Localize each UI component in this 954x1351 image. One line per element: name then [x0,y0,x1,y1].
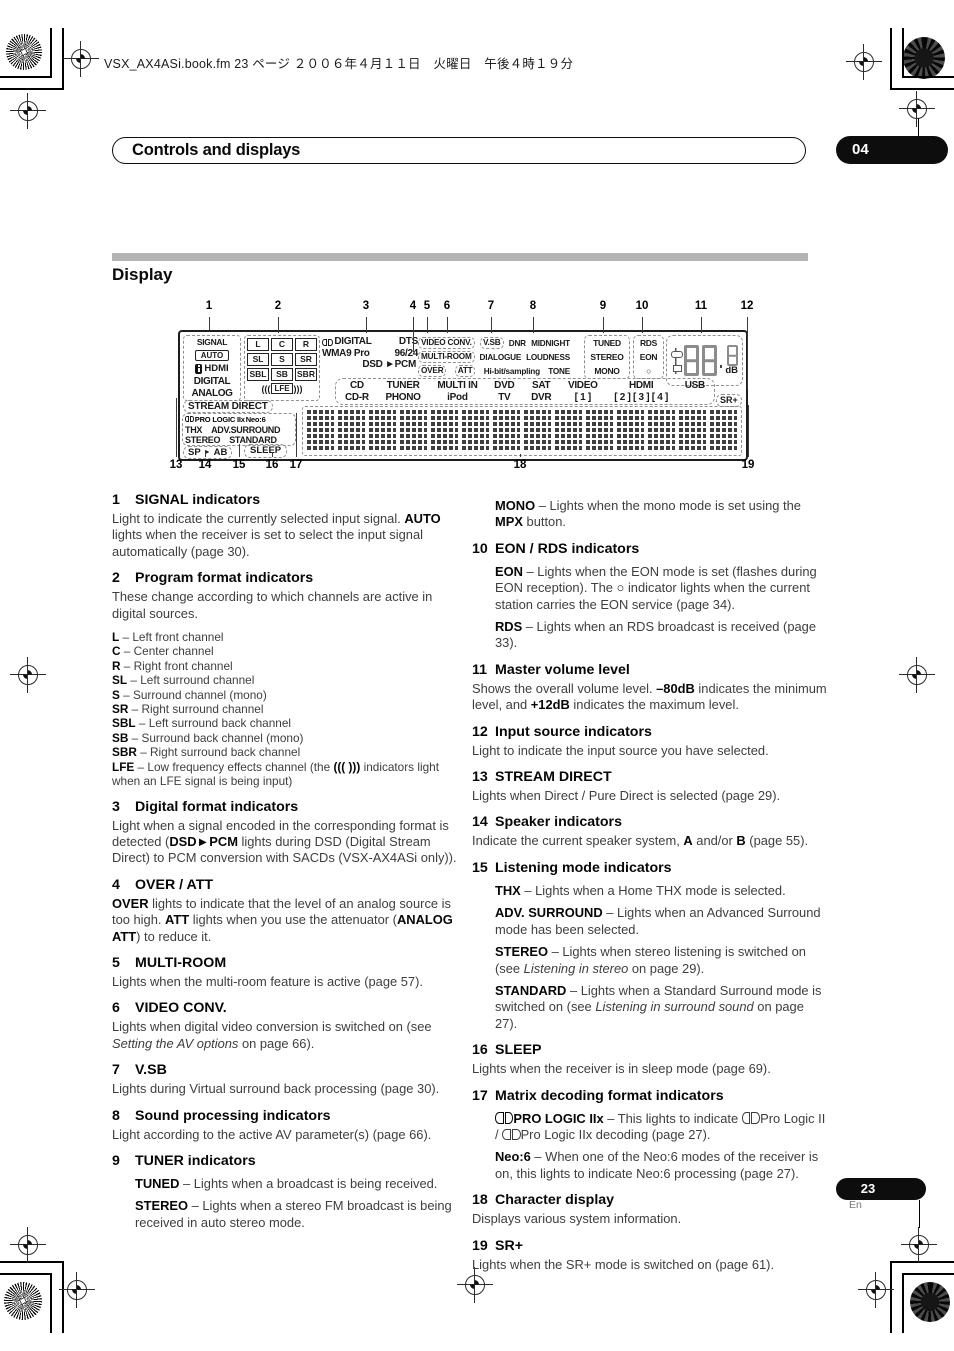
input-source: SATDVR [531,380,551,403]
registration-crosshair-icon [846,44,882,80]
section-heading: 17Matrix decoding format indicators [472,1088,828,1105]
body-paragraph: Lights when the multi-room feature is ac… [112,974,466,990]
callout-number: 14 [199,459,212,471]
sound-proc-indicator: Hi-bit/sampling [484,367,540,376]
body-paragraph: EON – Lights when the EON mode is set (f… [495,564,828,613]
callout-line [205,450,206,457]
body-paragraph: Shows the overall volume level. –80dB in… [472,681,828,714]
callout-line [447,317,448,333]
dot-matrix-cell [648,410,675,452]
dts-indicator: DTS [399,337,418,348]
dot-matrix-cell [617,410,644,452]
dot-matrix-cell [710,410,737,452]
language-label: En [849,1199,862,1211]
body-paragraph: Lights when the receiver is in sleep mod… [472,1061,828,1077]
manual-section: 15Listening mode indicatorsTHX – Lights … [472,860,828,1032]
listening-mode-row: THXADV.SURROUND [185,425,293,435]
section-title: Display [112,265,172,285]
channel-grid: LCRSLSSRSBLSBSBR [247,338,317,381]
manual-section: 13STREAM DIRECTLights when Direct / Pure… [472,769,828,804]
definition-item: R – Right front channel [112,659,466,673]
header-text: VSX_AX4ASi.book.fm 23 ページ ２００６年４月１１日 火曜日… [104,53,573,72]
seven-segment-digit [702,345,717,376]
callout-line [413,317,414,352]
crop-mark [0,1273,50,1275]
callout-line [296,413,297,457]
dolby-icon [502,1129,520,1140]
section-heading: 2Program format indicators [112,570,466,587]
dot-matrix-cell [462,410,489,452]
callout-number: 15 [233,459,246,471]
digital-indicator: DIGITAL [194,377,230,387]
input-source: CDCD-R [345,380,369,403]
body-paragraph: TUNED – Lights when a broadcast is being… [135,1176,466,1192]
manual-section: 10EON / RDS indicatorsEON – Lights when … [472,541,828,652]
section-rule [112,253,808,261]
manual-section: 2Program format indicatorsThese change a… [112,570,466,788]
channel-indicator: C [271,338,293,351]
sound-processing-block: VIDEO CONV.V.SBDNRMIDNIGHTMULTI-ROOMDIAL… [418,336,570,378]
section-heading: 10EON / RDS indicators [472,541,828,558]
registration-dark-circle-icon [903,37,945,79]
section-heading: 19SR+ [472,1238,828,1255]
definition-item: SL – Left surround channel [112,673,466,687]
sound-proc-indicator: V.SB [480,337,504,349]
callout-number: 16 [266,459,279,471]
callout-number: 7 [488,300,494,312]
section-heading: 12Input source indicators [472,724,828,741]
manual-section: 6VIDEO CONV.Lights when digital video co… [112,1000,466,1052]
sound-proc-indicator: LOUDNESS [526,353,570,362]
decimal-dot [720,365,723,368]
body-paragraph: Light when a signal encoded in the corre… [112,818,466,867]
dot-matrix-cell [679,410,706,452]
dot-matrix-cell [493,410,520,452]
registration-crosshair-icon [899,91,935,127]
section-heading: 15Listening mode indicators [472,860,828,877]
9624-indicator: 96/24 [394,349,418,360]
volume-fader-icon [671,348,681,374]
section-heading: 9TUNER indicators [112,1153,466,1170]
body-paragraph: PRO LOGIC IIx – This lights to indicate … [495,1111,828,1144]
body-paragraph: Lights when Direct / Pure Direct is sele… [472,788,828,804]
callout-number: 8 [530,300,536,312]
input-source: DVDTV [494,380,514,403]
callout-number: 6 [444,300,450,312]
dot-matrix-cell [400,410,427,452]
manual-section: 19SR+Lights when the SR+ mode is switche… [472,1238,828,1273]
auto-indicator: AUTO [195,350,230,361]
section-heading: 8Sound processing indicators [112,1108,466,1125]
manual-section: 7V.SBLights during Virtual surround back… [112,1062,466,1097]
page-number-badge: 23 [836,1178,926,1200]
callout-line [603,317,604,333]
callout-number: 2 [275,300,281,312]
channel-indicator: SBR [295,368,317,381]
connector-line [919,1200,920,1228]
definition-item: LFE – Low frequency effects channel (the… [112,760,466,789]
tuner-indicator: TUNED [593,339,621,348]
wma9-indicator: WMA9 Pro [322,349,370,360]
manual-section: 14Speaker indicatorsIndicate the current… [472,814,828,849]
registration-crosshair-icon [10,93,46,129]
dolby-icon [495,1112,513,1123]
sound-proc-indicator: MULTI-ROOM [418,351,475,363]
sound-proc-indicator: TONE [548,367,570,376]
callout-line [427,317,428,333]
definition-item: SBR – Right surround back channel [112,745,466,759]
registration-crosshair-icon [59,1272,95,1308]
channel-indicator: SR [295,353,317,366]
manual-section: 16SLEEPLights when the receiver is in sl… [472,1042,828,1077]
right-column: MONO – Lights when the mono mode is set … [472,492,828,1273]
db-unit-label: dB [725,366,738,376]
callout-number: 19 [742,459,755,471]
callout-line [278,317,279,333]
callout-number: 18 [514,459,527,471]
rds-indicator: ○ [646,367,651,376]
manual-section: 1SIGNAL indicatorsLight to indicate the … [112,492,466,560]
crop-mark [890,28,892,90]
crop-mark [890,88,954,90]
section-heading: 14Speaker indicators [472,814,828,831]
dot-matrix-cell [307,410,334,452]
callout-number: 4 [410,300,416,312]
callout-number: 3 [363,300,369,312]
lfe-indicator: ((( LFE ))) [247,383,317,394]
dot-matrix-cell [555,410,582,452]
section-heading: 13STREAM DIRECT [472,769,828,786]
rds-indicator: RDS [640,339,657,348]
section-heading: 3Digital format indicators [112,799,466,816]
definition-item: SB – Surround back channel (mono) [112,731,466,745]
sound-proc-indicator: ATT [455,365,476,377]
section-heading: 16SLEEP [472,1042,828,1059]
dolby-digital-indicator: DIGITAL [322,337,372,348]
callout-line [272,452,273,457]
manual-section: 12Input source indicatorsLight to indica… [472,724,828,759]
registration-crosshair-icon [10,657,46,693]
callout-number: 1 [206,300,212,312]
signal-block: SIGNAL AUTO HDMI DIGITAL ANALOG [183,335,241,401]
manual-section: MONO – Lights when the mono mode is set … [472,498,828,531]
connector-line [918,118,919,136]
format-block: DIGITAL DTS WMA9 Pro 96/24 DSD ►PCM [322,337,418,372]
channel-indicator: SB [271,368,293,381]
registration-crosshair-icon [899,657,935,693]
dot-matrix-cell [586,410,613,452]
input-source: TUNERPHONO [385,380,420,403]
dot-matrix-cell [431,410,458,452]
callout-line [366,317,367,333]
callout-number: 13 [170,459,183,471]
section-heading: 1SIGNAL indicators [112,492,466,509]
rds-block: RDSEON○ [633,335,664,379]
manual-section: 5MULTI-ROOMLights when the multi-room fe… [112,955,466,990]
callout-line [491,317,492,333]
dolby-icon [322,339,333,346]
dolby-icon [742,1112,760,1123]
character-display [302,406,742,456]
speaker-indicator: SP ► AB [183,446,232,459]
manual-section: 4OVER / ATTOVER lights to indicate that … [112,877,466,945]
registration-crosshair-icon [10,1227,46,1263]
definition-item: SBL – Left surround back channel [112,716,466,730]
body-paragraph: Light to indicate the currently selected… [112,511,466,560]
chapter-number-badge: 04 [836,136,948,164]
matrix-decoding-indicator: PRO LOGIC IIx Neo:6 [185,415,293,424]
body-paragraph: Lights during Virtual surround back proc… [112,1081,466,1097]
callout-number: 10 [636,300,649,312]
sound-proc-indicator: OVER [418,365,446,377]
body-paragraph: Indicate the current speaker system, A a… [472,833,828,849]
left-column: 1SIGNAL indicatorsLight to indicate the … [112,492,466,1231]
dot-matrix-cell [369,410,396,452]
chapter-title: Controls and displays [132,141,300,160]
stream-direct-indicator: STREAM DIRECT [183,400,273,413]
input-source: MULTI INiPod [437,380,477,403]
registration-crosshair-icon [858,1272,894,1308]
registration-dark-circle-icon [910,1282,950,1322]
manual-section: 18Character displayDisplays various syst… [472,1192,828,1227]
tuner-indicator: STEREO [590,353,623,362]
crop-mark [902,28,904,78]
body-paragraph: Neo:6 – When one of the Neo:6 modes of t… [495,1149,828,1182]
body-paragraph: Lights when digital video conversion is … [112,1019,466,1052]
section-heading: 5MULTI-ROOM [112,955,466,972]
section-heading: 18Character display [472,1192,828,1209]
input-source-block: CDCD-RTUNERPHONOMULTI INiPodDVDTVSATDVRV… [335,378,715,405]
callout-number: 5 [424,300,430,312]
section-heading: 4OVER / ATT [112,877,466,894]
callout-number: 11 [695,300,707,312]
dot-matrix-cell [524,410,551,452]
sleep-indicator: SLEEP [244,444,287,458]
signal-label: SIGNAL [197,337,227,347]
hdmi-indicator: HDMI [195,363,228,374]
section-heading: 6VIDEO CONV. [112,1000,466,1017]
dot-matrix-cell [338,410,365,452]
sound-proc-indicator: DNR [509,339,526,348]
definition-item: L – Left front channel [112,630,466,644]
seven-segment-digit-small [727,345,738,366]
analog-indicator: ANALOG [192,389,233,399]
body-paragraph: Lights when the SR+ mode is switched on … [472,1257,828,1273]
listening-modes-block: PRO LOGIC IIx Neo:6 THXADV.SURROUNDSTERE… [182,413,296,446]
sound-proc-indicator: VIDEO CONV. [418,337,475,349]
callout-number: 12 [741,300,754,312]
dolby-icon [185,416,194,421]
definition-list: L – Left front channelC – Center channel… [112,630,466,788]
body-paragraph: OVER lights to indicate that the level o… [112,896,466,945]
callout-line [642,317,643,333]
channel-indicator: R [295,338,317,351]
definition-item: SR – Right surround channel [112,702,466,716]
section-heading: 7V.SB [112,1062,466,1079]
input-source: VIDEO[ 1 ] [568,380,598,403]
seven-segment-digit [684,345,699,376]
listening-mode-row: STEREOSTANDARD [185,435,293,445]
dsd-pcm-indicator: DSD ►PCM [362,360,416,371]
callout-line [701,317,702,333]
rds-indicator: EON [640,353,658,362]
channel-indicator: S [271,353,293,366]
callout-number: 17 [290,459,303,471]
manual-page: VSX_AX4ASi.book.fm 23 ページ ２００６年４月１１日 火曜日… [0,0,954,1351]
hdmi-info-icon [195,364,202,374]
callout-line [176,398,177,457]
crop-mark [902,1273,904,1333]
crop-mark [902,1273,954,1275]
tuner-block: TUNEDSTEREOMONO [584,335,630,379]
callout-line [533,317,534,333]
callout-line [209,317,210,330]
tuner-indicator: MONO [594,367,619,376]
callout-line [748,405,749,457]
body-paragraph: These change according to which channels… [112,589,466,622]
channel-indicator: L [247,338,269,351]
callout-line [520,454,521,457]
body-paragraph: Light to indicate the input source you h… [472,743,828,759]
crop-mark [50,1273,52,1333]
manual-section: 11Master volume levelShows the overall v… [472,662,828,714]
registration-starburst-icon [4,1282,42,1320]
body-paragraph: THX – Lights when a Home THX mode is sel… [495,883,828,899]
manual-section: 17Matrix decoding format indicatorsPRO L… [472,1088,828,1183]
registration-crosshair-icon [63,41,99,77]
channel-indicator: SBL [247,368,269,381]
callout-line [239,444,240,457]
body-paragraph: STEREO – Lights when stereo listening is… [495,944,828,977]
crop-mark [902,76,954,78]
body-paragraph: STANDARD – Lights when a Standard Surrou… [495,983,828,1032]
definition-item: S – Surround channel (mono) [112,688,466,702]
body-paragraph: Light according to the active AV paramet… [112,1127,466,1143]
display-panel: SIGNAL AUTO HDMI DIGITAL ANALOG LCRSLSSR… [178,330,748,461]
body-paragraph: STEREO – Lights when a stereo FM broadca… [135,1198,466,1231]
channel-block: LCRSLSSRSBLSBSBR ((( LFE ))) [244,335,320,401]
chapter-title-bar: Controls and displays [112,137,806,164]
input-source: USB [685,380,705,403]
manual-section: 3Digital format indicatorsLight when a s… [112,799,466,867]
section-heading: 11Master volume level [472,662,828,679]
sound-proc-indicator: MIDNIGHT [531,339,570,348]
sound-proc-indicator: DIALOGUE [480,353,522,362]
input-source: HDMI[ 2 ] [ 3 ] [ 4 ] [614,380,668,403]
definition-item: C – Center channel [112,644,466,658]
manual-section: 8Sound processing indicatorsLight accord… [112,1108,466,1143]
crop-mark [0,88,62,90]
callout-number: 9 [600,300,606,312]
channel-indicator: SL [247,353,269,366]
registration-crosshair-icon [901,1227,937,1263]
body-paragraph: MONO – Lights when the mono mode is set … [495,498,828,531]
body-paragraph: ADV. SURROUND – Lights when an Advanced … [495,905,828,938]
body-paragraph: Displays various system information. [472,1211,828,1227]
manual-section: 9TUNER indicatorsTUNED – Lights when a b… [112,1153,466,1231]
registration-starburst-icon [6,34,42,70]
callout-line [747,317,748,390]
body-paragraph: RDS – Lights when an RDS broadcast is re… [495,619,828,652]
crop-mark [50,28,52,78]
crop-mark [0,76,50,78]
